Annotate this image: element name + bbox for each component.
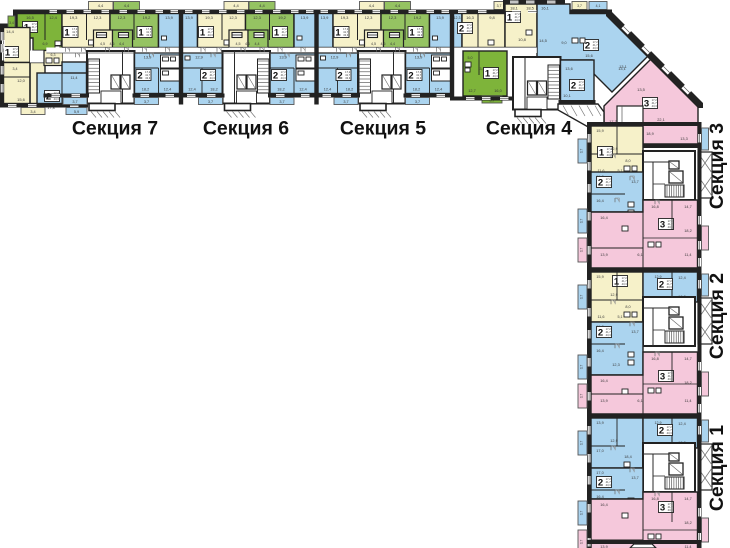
svg-text:18,2: 18,2: [277, 88, 284, 92]
svg-text:3,7: 3,7: [580, 149, 584, 154]
svg-text:12,4: 12,4: [435, 88, 442, 92]
svg-text:14,7: 14,7: [684, 205, 691, 209]
svg-text:12,0: 12,0: [17, 78, 26, 83]
svg-text:3: 3: [660, 371, 665, 382]
svg-text:43,3: 43,3: [345, 76, 351, 80]
svg-text:1: 1: [409, 27, 415, 38]
svg-text:2: 2: [137, 70, 142, 81]
svg-text:43,3: 43,3: [579, 86, 585, 90]
svg-text:13,9: 13,9: [596, 421, 603, 425]
svg-text:43,3: 43,3: [281, 76, 287, 80]
svg-text:2: 2: [585, 40, 590, 51]
svg-text:16,5: 16,5: [26, 15, 35, 20]
svg-text:3,7: 3,7: [580, 511, 584, 516]
svg-text:12,3: 12,3: [454, 16, 461, 20]
svg-text:22,1: 22,1: [657, 118, 664, 122]
svg-text:43,3: 43,3: [622, 282, 628, 286]
svg-text:13,3: 13,3: [680, 137, 687, 141]
svg-text:3,7: 3,7: [343, 100, 348, 104]
svg-text:12,3: 12,3: [389, 15, 398, 20]
svg-text:11,4: 11,4: [684, 253, 691, 257]
svg-text:14,7: 14,7: [684, 497, 691, 501]
svg-text:13,6: 13,6: [565, 67, 572, 71]
svg-text:4,4: 4,4: [233, 3, 239, 8]
svg-text:Секция 3: Секция 3: [706, 123, 728, 209]
svg-text:16,0: 16,0: [494, 89, 501, 93]
svg-text:43,3: 43,3: [493, 74, 499, 78]
svg-text:13,7: 13,7: [631, 476, 638, 480]
svg-text:12,3: 12,3: [118, 15, 127, 20]
svg-text:3,4: 3,4: [30, 110, 35, 114]
svg-text:12,9: 12,9: [331, 55, 340, 60]
svg-text:2: 2: [202, 70, 207, 81]
svg-text:2: 2: [273, 70, 278, 81]
svg-text:5,9: 5,9: [74, 110, 79, 114]
svg-text:4,4: 4,4: [255, 42, 260, 46]
svg-text:4,5: 4,5: [236, 42, 241, 46]
svg-text:2: 2: [598, 327, 603, 338]
svg-text:13,9: 13,9: [301, 15, 310, 20]
svg-text:14,7: 14,7: [684, 357, 691, 361]
svg-text:3,4: 3,4: [13, 67, 18, 71]
svg-text:16,8: 16,8: [651, 205, 658, 209]
svg-text:13,9: 13,9: [165, 15, 174, 20]
svg-text:4,4: 4,4: [259, 3, 265, 8]
svg-text:18,2: 18,2: [142, 88, 149, 92]
svg-text:8,0: 8,0: [625, 305, 630, 309]
svg-text:12,4: 12,4: [299, 88, 306, 92]
svg-text:10,8: 10,8: [518, 37, 527, 42]
svg-text:16,4: 16,4: [596, 199, 603, 203]
svg-text:13,9: 13,9: [600, 253, 607, 257]
svg-text:1: 1: [5, 47, 11, 58]
svg-text:3: 3: [660, 219, 665, 230]
svg-text:16,4: 16,4: [600, 503, 607, 507]
svg-text:12,4: 12,4: [49, 15, 58, 20]
svg-text:Секция 4: Секция 4: [486, 118, 572, 140]
svg-text:Секция 1: Секция 1: [706, 425, 728, 511]
svg-text:13,7: 13,7: [631, 180, 638, 184]
svg-text:3,7: 3,7: [208, 100, 213, 104]
svg-text:43,3: 43,3: [667, 285, 673, 289]
svg-text:43,3: 43,3: [667, 431, 673, 435]
svg-text:43,3: 43,3: [606, 333, 612, 337]
svg-text:12,4: 12,4: [188, 88, 195, 92]
svg-text:17,0: 17,0: [596, 471, 603, 475]
svg-text:12,9: 12,9: [655, 275, 662, 279]
svg-text:12,7: 12,7: [468, 89, 475, 93]
svg-text:11,6: 11,6: [597, 315, 604, 319]
svg-text:13,9: 13,9: [600, 399, 607, 403]
svg-text:13,9: 13,9: [144, 55, 153, 60]
svg-text:3,7: 3,7: [279, 100, 284, 104]
svg-text:Секция 5: Секция 5: [340, 118, 426, 140]
svg-text:1: 1: [599, 147, 605, 158]
svg-text:19,2: 19,2: [143, 15, 152, 20]
svg-text:Секция 2: Секция 2: [706, 273, 728, 359]
svg-text:4,4: 4,4: [119, 42, 124, 46]
svg-text:1: 1: [200, 27, 206, 38]
svg-text:4,4: 4,4: [390, 42, 395, 46]
svg-text:12,3: 12,3: [94, 15, 103, 20]
svg-text:13,9: 13,9: [185, 15, 194, 20]
svg-text:1: 1: [507, 12, 513, 23]
svg-text:3,7: 3,7: [580, 365, 584, 370]
svg-text:13,9: 13,9: [415, 55, 424, 60]
svg-text:3,7: 3,7: [144, 100, 149, 104]
svg-text:2: 2: [408, 70, 413, 81]
svg-text:3,4: 3,4: [9, 21, 14, 25]
svg-text:16,8: 16,8: [651, 497, 658, 501]
svg-text:13,9: 13,9: [321, 15, 330, 20]
svg-text:13,9: 13,9: [279, 55, 288, 60]
svg-text:12,9: 12,9: [655, 421, 662, 425]
svg-text:4,6: 4,6: [245, 42, 250, 46]
svg-text:3,7: 3,7: [580, 540, 584, 545]
svg-text:3,7: 3,7: [580, 394, 584, 399]
svg-text:12,4: 12,4: [164, 88, 171, 92]
svg-text:19,2: 19,2: [414, 15, 423, 20]
svg-text:2: 2: [598, 477, 603, 488]
svg-text:1: 1: [335, 27, 341, 38]
svg-text:19,2: 19,2: [278, 15, 287, 20]
svg-text:6,1: 6,1: [637, 253, 642, 257]
svg-text:4,5: 4,5: [371, 42, 376, 46]
svg-text:3,7: 3,7: [580, 219, 584, 224]
svg-text:43,3: 43,3: [146, 33, 152, 37]
svg-text:19,3: 19,3: [205, 15, 214, 20]
svg-text:43,3: 43,3: [208, 33, 214, 37]
svg-text:9,8: 9,8: [489, 15, 495, 20]
svg-text:16,3: 16,3: [466, 15, 475, 20]
svg-text:43,3: 43,3: [145, 76, 151, 80]
svg-text:5,1: 5,1: [618, 315, 623, 319]
svg-text:43,3: 43,3: [72, 33, 78, 37]
svg-text:13,7: 13,7: [631, 330, 638, 334]
svg-text:15,6: 15,6: [585, 54, 592, 58]
svg-text:6,9: 6,9: [43, 42, 48, 46]
svg-text:18,2: 18,2: [210, 88, 217, 92]
svg-text:43,3: 43,3: [606, 183, 612, 187]
svg-text:13,5: 13,5: [637, 87, 646, 92]
svg-text:17,0: 17,0: [596, 449, 603, 453]
svg-text:43,3: 43,3: [343, 33, 349, 37]
svg-text:4,4: 4,4: [369, 3, 375, 8]
svg-text:16,8: 16,8: [651, 357, 658, 361]
svg-text:6,1: 6,1: [637, 399, 642, 403]
svg-text:43,3: 43,3: [606, 483, 612, 487]
svg-text:3,7: 3,7: [72, 100, 77, 104]
svg-text:43,3: 43,3: [416, 76, 422, 80]
svg-text:2: 2: [659, 279, 664, 290]
svg-text:3: 3: [660, 502, 665, 513]
svg-text:4,6: 4,6: [110, 42, 115, 46]
svg-text:4,4: 4,4: [395, 3, 401, 8]
svg-text:16,4: 16,4: [600, 216, 607, 220]
svg-text:3,7: 3,7: [580, 248, 584, 253]
svg-text:12,3: 12,3: [365, 15, 374, 20]
svg-text:13,1: 13,1: [618, 67, 625, 71]
svg-text:3,7: 3,7: [580, 295, 584, 300]
svg-text:4,5: 4,5: [100, 42, 105, 46]
svg-text:12,9: 12,9: [195, 55, 204, 60]
svg-text:18,2: 18,2: [684, 229, 691, 233]
svg-text:18,2: 18,2: [413, 88, 420, 92]
svg-text:15,6: 15,6: [17, 97, 26, 102]
svg-text:43,3: 43,3: [515, 18, 521, 22]
svg-text:2: 2: [571, 80, 576, 91]
svg-text:6,3: 6,3: [51, 53, 56, 57]
svg-text:9,0: 9,0: [561, 41, 566, 45]
svg-text:5,0: 5,0: [468, 56, 473, 60]
svg-text:43,3: 43,3: [54, 97, 60, 101]
svg-text:1: 1: [274, 27, 280, 38]
svg-text:3,7: 3,7: [577, 4, 582, 8]
svg-text:8,0: 8,0: [625, 159, 630, 163]
svg-text:12,3: 12,3: [612, 363, 619, 367]
svg-text:13,9: 13,9: [436, 15, 445, 20]
svg-text:14,4: 14,4: [6, 29, 15, 34]
svg-text:3,7: 3,7: [415, 100, 420, 104]
svg-text:2: 2: [598, 177, 603, 188]
svg-text:1: 1: [64, 27, 70, 38]
svg-text:4,4: 4,4: [98, 3, 104, 8]
svg-text:43,3: 43,3: [593, 46, 599, 50]
svg-text:11,4: 11,4: [70, 76, 77, 80]
svg-text:15,9: 15,9: [596, 275, 603, 279]
svg-text:43,3: 43,3: [652, 104, 658, 108]
svg-text:Секция 6: Секция 6: [203, 118, 289, 140]
svg-text:43,3: 43,3: [417, 33, 423, 37]
svg-text:1: 1: [138, 27, 144, 38]
svg-text:43,3: 43,3: [210, 76, 216, 80]
svg-text:4,6: 4,6: [381, 42, 386, 46]
svg-text:18,1: 18,1: [510, 6, 519, 11]
svg-text:16,4: 16,4: [600, 379, 607, 383]
svg-text:3: 3: [644, 98, 649, 109]
svg-text:3,7: 3,7: [580, 441, 584, 446]
svg-text:43,3: 43,3: [32, 28, 38, 32]
svg-text:12,3: 12,3: [253, 15, 262, 20]
svg-text:10,1: 10,1: [563, 94, 570, 98]
svg-text:18,9: 18,9: [646, 132, 653, 136]
svg-text:11,4: 11,4: [684, 399, 691, 403]
svg-text:2: 2: [659, 425, 664, 436]
svg-text:3,7: 3,7: [497, 4, 502, 8]
svg-text:19,3: 19,3: [70, 15, 79, 20]
svg-text:12,4: 12,4: [678, 276, 685, 280]
svg-text:18,2: 18,2: [346, 88, 353, 92]
svg-text:12,4: 12,4: [678, 422, 685, 426]
svg-text:15,9: 15,9: [596, 129, 603, 133]
svg-text:43,3: 43,3: [282, 33, 288, 37]
svg-text:18,2: 18,2: [684, 521, 691, 525]
svg-text:16,1: 16,1: [541, 6, 550, 11]
svg-text:43,3: 43,3: [467, 29, 473, 33]
svg-text:16,4: 16,4: [596, 349, 603, 353]
svg-text:4,1: 4,1: [596, 4, 601, 8]
svg-text:1: 1: [485, 68, 491, 79]
svg-text:12,4: 12,4: [324, 88, 331, 92]
svg-text:43,3: 43,3: [13, 53, 19, 57]
svg-text:4,4: 4,4: [124, 3, 130, 8]
svg-text:14,5: 14,5: [539, 38, 548, 43]
svg-text:2: 2: [337, 70, 342, 81]
svg-text:2: 2: [459, 23, 464, 34]
svg-text:12,3: 12,3: [229, 15, 238, 20]
svg-text:Секция 7: Секция 7: [72, 118, 158, 140]
svg-text:18,4: 18,4: [624, 455, 631, 459]
svg-text:19,3: 19,3: [341, 15, 350, 20]
svg-text:18,5: 18,5: [526, 6, 535, 11]
